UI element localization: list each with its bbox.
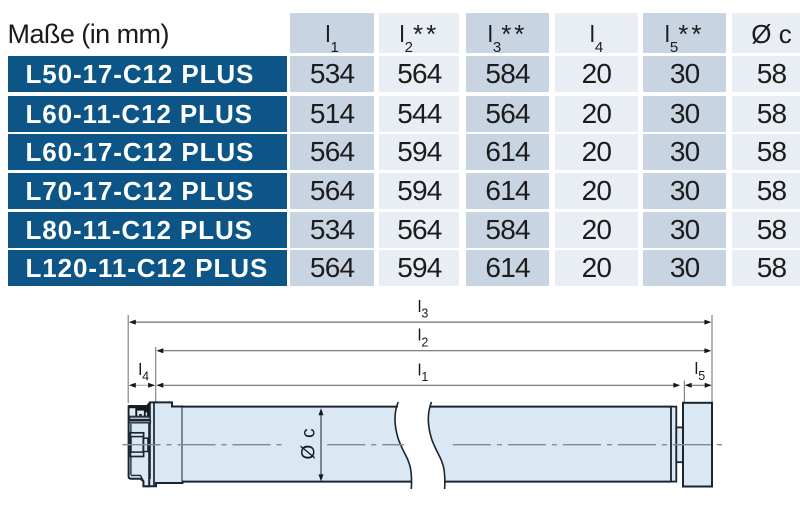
- svg-text:l2: l2: [418, 326, 429, 350]
- svg-text:l5: l5: [695, 359, 706, 383]
- svg-text:l3: l3: [418, 297, 429, 321]
- svg-text:Ø c: Ø c: [299, 428, 320, 460]
- svg-text:l1: l1: [418, 360, 429, 384]
- svg-text:l4: l4: [138, 360, 149, 384]
